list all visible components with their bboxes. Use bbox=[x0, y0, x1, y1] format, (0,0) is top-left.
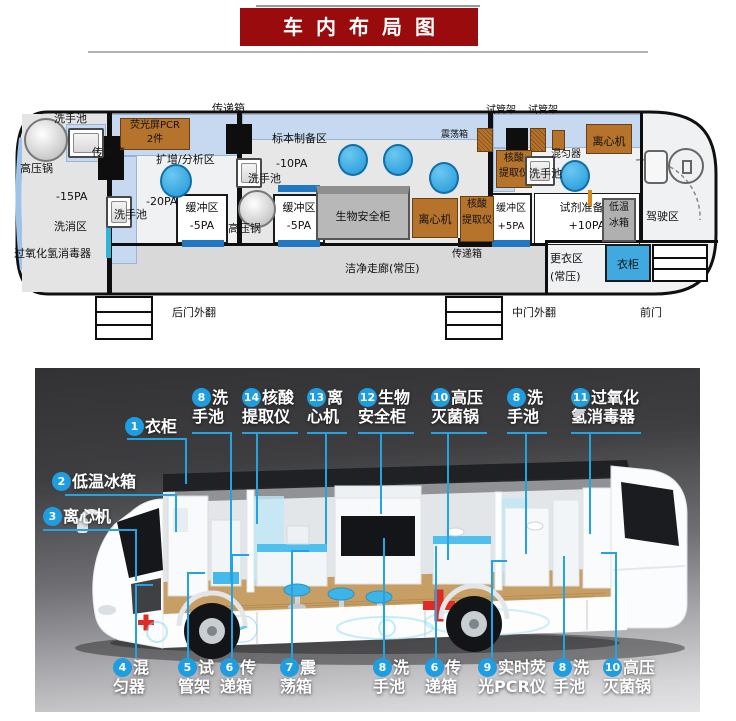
centrifuge-label: 离心机 bbox=[413, 211, 457, 227]
low-temp-freezer: 低温 冰箱 bbox=[602, 198, 636, 242]
front-door-label: 前门 bbox=[640, 306, 662, 320]
corridor-label: 洁净走廊(常压) bbox=[345, 262, 420, 276]
callout-tube-rack: 5试管架 bbox=[178, 658, 216, 696]
callout-label: 低温冰箱 bbox=[72, 472, 136, 491]
title-bottom-rule bbox=[88, 51, 648, 53]
callout-line bbox=[127, 438, 185, 440]
sink-3d bbox=[527, 522, 543, 530]
callout-freezer: 2低温冰箱 bbox=[52, 472, 136, 491]
pressure-label: -10PA bbox=[276, 157, 307, 171]
callout-number-badge: 14 bbox=[242, 388, 261, 407]
callout-autoclave: 10高压灭菌锅 bbox=[603, 658, 657, 696]
callout-number-badge: 5 bbox=[178, 658, 197, 677]
callout-line bbox=[242, 432, 298, 434]
callout-line bbox=[358, 432, 414, 434]
callout-autoclave: 10高压灭菌锅 bbox=[431, 388, 485, 426]
callout-number-badge: 8 bbox=[507, 388, 526, 407]
rear-door-steps bbox=[95, 296, 153, 340]
driver-seat bbox=[644, 150, 668, 184]
callout-h2o2-disinfector: 11过氧化氢消毒器 bbox=[571, 388, 641, 426]
callout-sink: 8洗手池 bbox=[373, 658, 411, 696]
callout-extractor: 14核酸提取仪 bbox=[242, 388, 296, 426]
floorplan: 缓冲区 -5PA 缓冲区 -5PA 缓冲区 +5PA 试剂准备区 +10PA 荧… bbox=[10, 100, 726, 345]
callout-number-badge: 12 bbox=[358, 388, 377, 407]
tube-rack-label: 试管架 bbox=[528, 105, 558, 118]
callout-line bbox=[571, 432, 641, 434]
callout-number-badge: 2 bbox=[52, 472, 71, 491]
callout-number-badge: 13 bbox=[307, 388, 326, 407]
callout-number-badge: 9 bbox=[478, 658, 497, 677]
changing-label-line2: (常压) bbox=[550, 268, 583, 286]
callout-line bbox=[525, 432, 527, 554]
callout-line bbox=[135, 584, 153, 586]
door-bar bbox=[278, 185, 320, 192]
extractor-label-line1: 核酸 bbox=[461, 197, 493, 213]
door-bar bbox=[278, 240, 320, 247]
freezer-label-line2: 冰箱 bbox=[604, 216, 634, 232]
callout-transfer-box: 6传递箱 bbox=[425, 658, 463, 696]
callout-line bbox=[291, 550, 309, 552]
callout-line bbox=[307, 432, 347, 434]
cabinet-3d bbox=[553, 500, 579, 586]
pcr-label-line2: 2件 bbox=[121, 133, 189, 147]
buffer-pressure: -5PA bbox=[178, 218, 226, 235]
rear-door-label: 后门外翻 bbox=[172, 306, 216, 320]
callout-line bbox=[65, 494, 175, 496]
stool bbox=[560, 160, 590, 192]
callout-number-badge: 8 bbox=[553, 658, 572, 677]
callout-line bbox=[175, 494, 177, 532]
extractor-mid: 核酸 提取仪 bbox=[460, 196, 494, 242]
callout-line bbox=[435, 546, 437, 658]
callout-centrifuge: 3离心机 bbox=[43, 507, 111, 526]
callout-realtime-pcr: 9实时荧光PCR仪 bbox=[478, 658, 548, 696]
centrifuge-right: 离心机 bbox=[586, 124, 632, 154]
tube-rack-label: 试管架 bbox=[486, 105, 516, 118]
middle-door-label: 中门外翻 bbox=[512, 306, 556, 320]
callout-centrifuge: 13离心机 bbox=[307, 388, 345, 426]
door-bar bbox=[182, 240, 224, 247]
callout-number-badge: 8 bbox=[373, 658, 392, 677]
buffer-label: 缓冲区 bbox=[492, 201, 530, 216]
glass-partition bbox=[495, 492, 502, 590]
callout-shaker: 7震荡箱 bbox=[280, 658, 318, 696]
callout-number-badge: 7 bbox=[280, 658, 299, 677]
sink-label: 洗手池 bbox=[248, 172, 281, 186]
callout-line bbox=[491, 560, 507, 562]
pressure-label: -20PA bbox=[146, 195, 177, 209]
centrifuge-label: 离心机 bbox=[587, 133, 631, 149]
door-bar bbox=[492, 240, 530, 247]
wall bbox=[545, 243, 548, 294]
centrifuge-mid: 离心机 bbox=[412, 198, 458, 238]
callout-line bbox=[507, 432, 547, 434]
callout-label: 衣柜 bbox=[145, 417, 177, 436]
callout-number-badge: 1 bbox=[125, 417, 144, 436]
glass-partition bbox=[247, 490, 254, 592]
callout-line bbox=[383, 538, 385, 658]
title-top-rule bbox=[256, 5, 480, 7]
callout-line bbox=[135, 529, 137, 581]
buffer-label: 缓冲区 bbox=[178, 200, 226, 217]
callout-line bbox=[185, 438, 187, 484]
bus-3d-render: 1衣柜 8洗手池 14核酸提取仪 13离心机 12生物安全柜 10高压灭菌锅 8… bbox=[35, 368, 700, 712]
amp-area-label: 扩增/分析区 bbox=[156, 153, 215, 167]
callout-line bbox=[192, 432, 232, 434]
callout-line bbox=[589, 432, 591, 534]
callout-biosafety-cabinet: 12生物安全柜 bbox=[358, 388, 412, 426]
callout-line bbox=[256, 432, 258, 524]
stool bbox=[160, 164, 192, 198]
callout-number-badge: 6 bbox=[220, 658, 239, 677]
sink-label: 洗手池 bbox=[54, 112, 87, 126]
extractor-label-line2: 提取仪 bbox=[461, 213, 493, 229]
callout-sink: 8洗手池 bbox=[553, 658, 591, 696]
tube-rack-box bbox=[530, 128, 546, 152]
callout-line bbox=[231, 554, 249, 556]
biosafety-cabinet: 生物安全柜 bbox=[316, 186, 410, 240]
callout-line bbox=[380, 432, 382, 514]
transfer-pass-box bbox=[226, 124, 252, 154]
decon-area-label: 洗消区 bbox=[54, 220, 87, 234]
h2o2-disinfector-label: 过氧化氢消毒器 bbox=[14, 247, 91, 261]
callout-line bbox=[187, 572, 205, 574]
page: 车内布局图 bbox=[0, 0, 736, 721]
buffer-pressure: +5PA bbox=[492, 219, 530, 234]
shaker-label: 震荡箱 bbox=[441, 130, 468, 141]
transfer-box-label: 传递箱 bbox=[92, 146, 125, 160]
changing-area-label: 更衣区 (常压) bbox=[550, 250, 583, 285]
pressure-label: -15PA bbox=[56, 190, 87, 204]
steering-column bbox=[682, 160, 692, 174]
wardrobe-cabinet: 衣柜 bbox=[605, 244, 651, 282]
front-steps bbox=[652, 244, 708, 282]
callout-label: 离心机 bbox=[63, 507, 111, 526]
stool bbox=[383, 144, 413, 176]
driver-area-label: 驾驶区 bbox=[646, 210, 679, 224]
autoclave-label: 高压锅 bbox=[20, 162, 53, 176]
middle-door-steps bbox=[445, 296, 503, 340]
callout-number-badge: 4 bbox=[113, 658, 132, 677]
callout-number-badge: 11 bbox=[571, 388, 590, 407]
shaker-box bbox=[477, 128, 493, 152]
callout-line bbox=[291, 550, 293, 658]
sink-label: 洗手池 bbox=[114, 208, 147, 222]
headlight bbox=[98, 605, 116, 615]
callout-line bbox=[135, 584, 137, 658]
callout-transfer-box: 6传递箱 bbox=[220, 658, 258, 696]
freezer-label-line1: 低温 bbox=[604, 200, 634, 216]
callout-number-badge: 10 bbox=[603, 658, 622, 677]
cabinet-3d bbox=[505, 508, 549, 586]
callout-sink: 8洗手池 bbox=[507, 388, 545, 426]
autoclave-label: 高压锅 bbox=[228, 222, 261, 236]
prep-area-label: 标本制备区 bbox=[272, 132, 327, 146]
stool bbox=[429, 162, 459, 194]
callout-line bbox=[491, 560, 493, 658]
callout-mixer: 4混匀器 bbox=[113, 658, 151, 696]
buffer-room-amp: 缓冲区 -5PA bbox=[176, 194, 228, 244]
callout-number-badge: 8 bbox=[192, 388, 211, 407]
bsc-label: 生物安全柜 bbox=[318, 208, 408, 224]
callout-line bbox=[43, 529, 135, 531]
wardrobe-label: 衣柜 bbox=[607, 256, 649, 272]
callout-sink: 8洗手池 bbox=[192, 388, 230, 426]
page-title: 车内布局图 bbox=[240, 8, 478, 46]
buffer-room-reagent: 缓冲区 +5PA bbox=[490, 193, 532, 245]
changing-label-line1: 更衣区 bbox=[550, 250, 583, 268]
driver-wall bbox=[640, 112, 643, 242]
callout-line bbox=[615, 552, 617, 658]
callout-line bbox=[325, 432, 327, 544]
callout-line bbox=[231, 554, 233, 658]
fluorescent-pcr-unit: 荧光屏PCR 2件 bbox=[120, 118, 190, 150]
callout-line bbox=[447, 432, 449, 560]
callout-number-badge: 6 bbox=[425, 658, 444, 677]
transfer-box-label: 传递箱 bbox=[452, 249, 482, 262]
stool bbox=[338, 144, 368, 176]
small-equipment-box bbox=[552, 130, 565, 150]
transfer-box-top-label: 传递箱 bbox=[212, 102, 245, 116]
callout-line bbox=[187, 572, 189, 658]
callout-line bbox=[563, 556, 565, 658]
callout-number-badge: 3 bbox=[43, 507, 62, 526]
mixer-label: 混匀器 bbox=[551, 149, 581, 162]
callout-wardrobe: 1衣柜 bbox=[125, 417, 177, 436]
pcr-label-line1: 荧光屏PCR bbox=[121, 119, 189, 133]
callout-line bbox=[431, 432, 487, 434]
sink-label: 洗手池 bbox=[529, 167, 562, 181]
callout-number-badge: 10 bbox=[431, 388, 450, 407]
accent-strip bbox=[588, 190, 592, 206]
callout-line bbox=[601, 552, 617, 554]
